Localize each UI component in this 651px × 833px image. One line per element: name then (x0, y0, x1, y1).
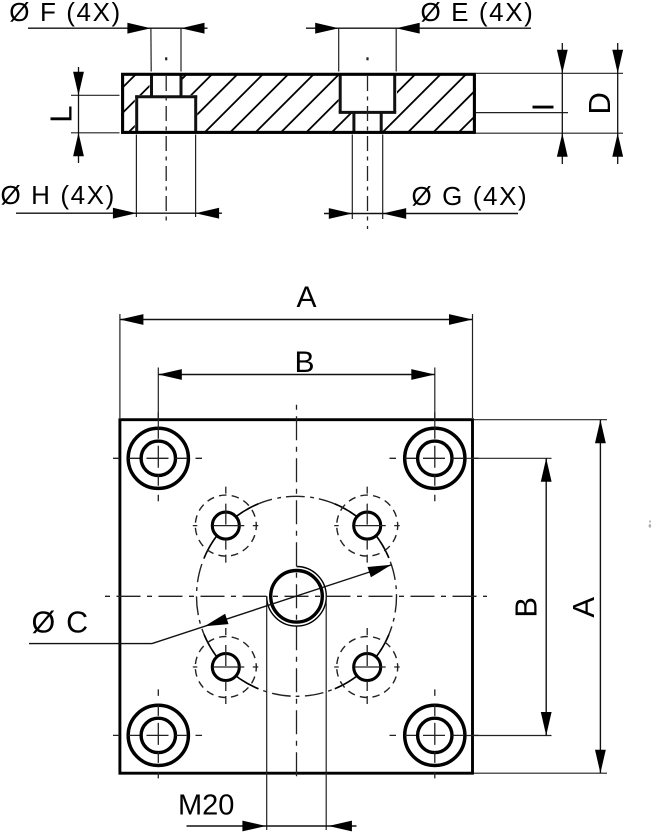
svg-text:L: L (44, 105, 79, 122)
svg-text:Ø G (4X): Ø G (4X) (412, 181, 529, 211)
svg-text:Ø E (4X): Ø E (4X) (421, 0, 535, 27)
svg-text:A: A (566, 597, 601, 618)
svg-text:Ø H (4X): Ø H (4X) (1, 180, 116, 210)
svg-text:D: D (582, 92, 617, 114)
svg-text:A: A (296, 281, 316, 314)
svg-text:I: I (526, 103, 561, 112)
svg-text:Ø C: Ø C (32, 606, 90, 640)
svg-text:B: B (294, 346, 314, 379)
svg-text:Ø F (4X): Ø F (4X) (9, 0, 121, 27)
svg-text:M20: M20 (178, 789, 234, 821)
svg-text:B: B (509, 597, 544, 618)
